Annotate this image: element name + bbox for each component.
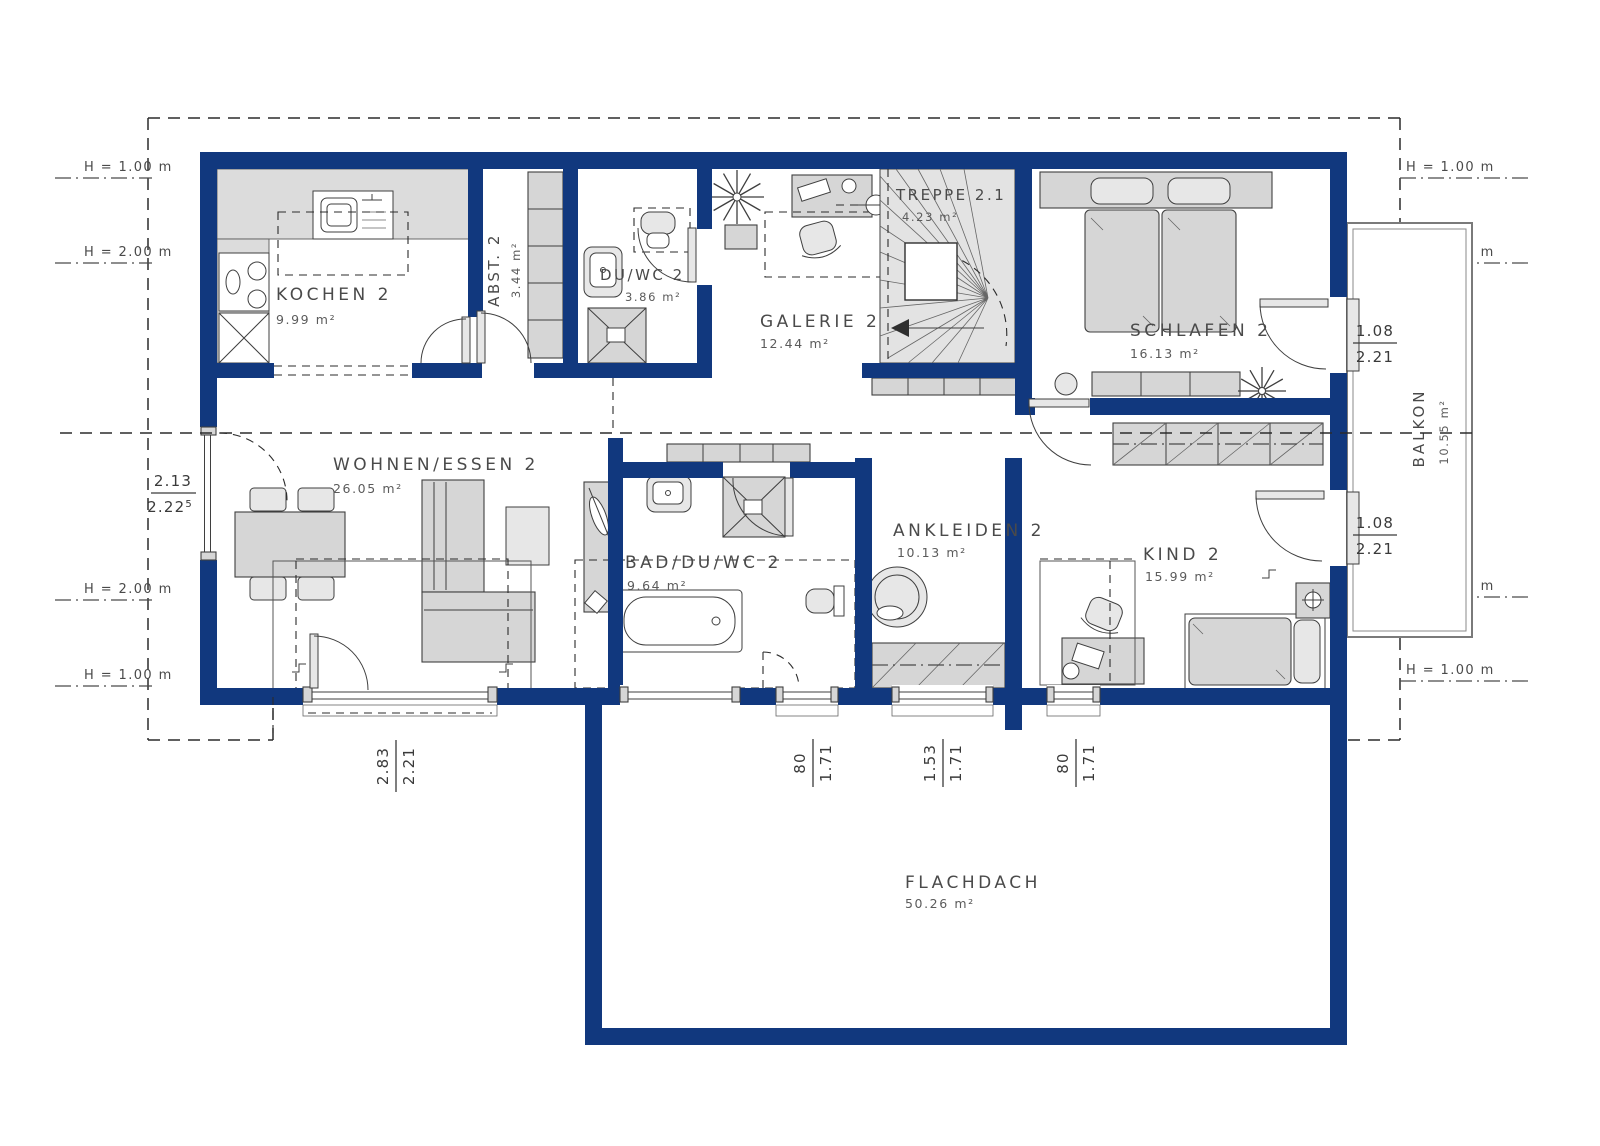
bath-sideboard	[667, 444, 810, 462]
wardrobe-hatched	[872, 643, 1005, 688]
height-mark-label: H = 2.00 m	[84, 245, 173, 260]
room-label-bad: BAD/DU/WC 2	[625, 553, 782, 573]
toilet-icon	[806, 586, 844, 616]
room-area-schlafen: 16.13 m²	[1130, 346, 1200, 361]
svg-text:1.08: 1.08	[1356, 514, 1394, 532]
svg-text:2.13: 2.13	[154, 472, 192, 490]
room-label-duwc: DU/WC 2	[600, 266, 685, 284]
floor-plan-drawing: H = 1.00 m H = 2.00 m H = 2.00 m H = 1.0…	[0, 0, 1600, 1146]
room-label-abst: ABST. 2	[485, 233, 503, 307]
single-bed-icon	[1185, 614, 1325, 689]
kitchen-sink-icon	[313, 191, 393, 239]
window-bath	[620, 685, 740, 708]
room-area-galerie: 12.44 m²	[760, 336, 830, 351]
room-area-kind: 15.99 m²	[1145, 569, 1215, 584]
svg-text:2.225: 2.225	[147, 498, 193, 516]
dim-win-ankleiden: 1.53 1.71	[921, 739, 965, 787]
cooktop-icon	[219, 253, 269, 311]
dim-terrace-door: 2.83 2.21	[374, 740, 418, 792]
svg-text:2.21: 2.21	[400, 747, 418, 785]
height-mark-label: H = 1.00 m	[1406, 663, 1495, 678]
svg-text:2.21: 2.21	[1356, 540, 1394, 558]
room-area-ankleiden: 10.13 m²	[897, 545, 967, 560]
height-mark-label: H = 1.00 m	[1406, 160, 1495, 175]
shower-icon	[588, 308, 646, 363]
dishwasher-icon	[219, 313, 269, 363]
room-label-ankleiden: ANKLEIDEN 2	[893, 521, 1045, 541]
svg-text:1.53: 1.53	[921, 744, 939, 782]
svg-text:80: 80	[791, 752, 809, 774]
room-area-abst: 3.44 m²	[509, 242, 523, 298]
floor-plan-page: H = 1.00 m H = 2.00 m H = 2.00 m H = 1.0…	[0, 0, 1600, 1146]
balcony: BALKON 10.55 m²	[1347, 223, 1472, 637]
window-left	[200, 427, 217, 560]
svg-text:2.21: 2.21	[1356, 348, 1394, 366]
height-mark-label: H = 1.00 m	[84, 160, 173, 175]
room-area-duwc: 3.86 m²	[625, 290, 681, 304]
room-area-treppe: 4.23 m²	[902, 210, 958, 224]
terrace-sliding-door	[303, 685, 497, 716]
bathtub-icon	[617, 590, 742, 652]
room-area-balkon: 10.55 m²	[1437, 399, 1451, 464]
svg-text:1.08: 1.08	[1356, 322, 1394, 340]
svg-text:80: 80	[1054, 752, 1072, 774]
storage-shelves	[528, 172, 563, 358]
svg-text:2.83: 2.83	[374, 747, 392, 785]
shower-icon	[723, 477, 785, 537]
flat-roof: FLACHDACH 50.26 m²	[585, 705, 1347, 1045]
washbasin-icon	[647, 476, 691, 512]
room-label-flachdach: FLACHDACH	[905, 873, 1041, 893]
svg-text:1.71: 1.71	[947, 744, 965, 782]
wardrobe-hatched	[1113, 423, 1323, 465]
room-label-galerie: GALERIE 2	[760, 312, 880, 332]
room-area-flachdach: 50.26 m²	[905, 896, 975, 911]
round-chair-icon	[867, 567, 927, 627]
shaft-icon	[1296, 583, 1330, 618]
room-label-treppe: TREPPE 2.1	[895, 186, 1006, 204]
room-label-kochen: KOCHEN 2	[276, 285, 392, 305]
room-area-wohnen: 26.05 m²	[333, 481, 403, 496]
desk-lamp-icon	[842, 179, 856, 193]
room-label-wohnen: WOHNEN/ESSEN 2	[333, 455, 539, 475]
room-label-kind: KIND 2	[1143, 545, 1222, 565]
dim-left-window: 2.13 2.225	[147, 472, 196, 516]
svg-text:1.71: 1.71	[1080, 744, 1098, 782]
room-label-schlafen: SCHLAFEN 2	[1130, 321, 1271, 341]
gallery-cabinet	[725, 225, 757, 249]
room-area-kochen: 9.99 m²	[276, 312, 336, 327]
height-marks-left: H = 1.00 m H = 2.00 m H = 2.00 m H = 1.0…	[55, 160, 173, 686]
height-mark-label: H = 1.00 m	[84, 668, 173, 683]
svg-text:1.71: 1.71	[817, 744, 835, 782]
height-mark-label: H = 2.00 m	[84, 582, 173, 597]
bed-headboard	[1040, 172, 1272, 208]
room-area-bad: 9.64 m²	[627, 578, 687, 593]
room-label-balkon: BALKON	[1410, 389, 1428, 468]
stair-landing	[905, 243, 957, 300]
